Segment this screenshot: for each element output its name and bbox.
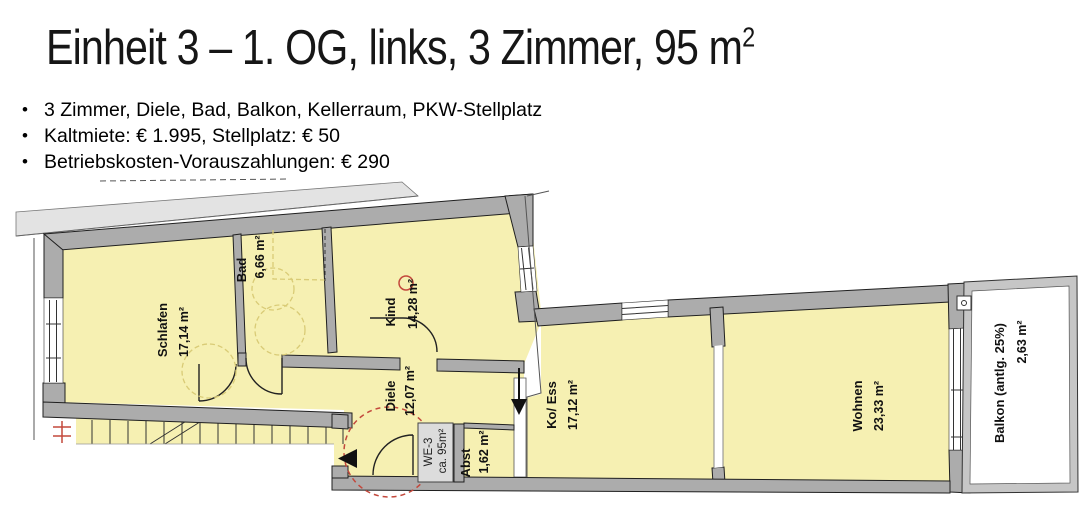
- room-label-koess: Ko/ Ess: [544, 381, 559, 429]
- room-label-wohnen: Wohnen: [850, 380, 865, 431]
- room-area-kind: 14,28 m²: [406, 279, 420, 329]
- room-label-bad: Bad: [234, 258, 249, 283]
- wall-koess-wohnen-top: [710, 307, 725, 347]
- room-label-schlafen: Schlafen: [155, 303, 170, 357]
- floorplan-drawing: WE-3 ca. 95m² Schlafen 17,14 m² Bad 6,66…: [0, 0, 1079, 520]
- unit-label-line2: ca. 95m²: [437, 428, 449, 473]
- wall-diele-left-bottom: [332, 466, 348, 478]
- room-label-diele: Diele: [383, 380, 398, 411]
- room-area-koess: 17,12 m²: [566, 380, 580, 430]
- room-area-balkon: 2,63 m²: [1015, 320, 1029, 363]
- wall-diele-north-c: [437, 359, 524, 373]
- window-schlafen: [44, 298, 63, 383]
- room-label-kind: Kind: [383, 298, 398, 327]
- slide: Einheit 3 – 1. OG, links, 3 Zimmer, 95 m…: [0, 0, 1079, 520]
- room-area-wohnen: 23,33 m²: [872, 381, 886, 431]
- room-label-balkon: Balkon (antlg. 25%): [992, 323, 1007, 443]
- section-dash-line: [100, 179, 290, 181]
- wall-diele-left-top: [332, 414, 348, 429]
- room-area-abst: 1,62 m²: [477, 430, 491, 473]
- column-marker: [957, 296, 971, 310]
- wall-diele-north-a: [238, 353, 246, 366]
- survey-cross-marker: [53, 421, 71, 443]
- unit-label-box: WE-3 ca. 95m²: [418, 423, 453, 482]
- room-fills: [58, 210, 952, 484]
- balcony: [957, 276, 1078, 493]
- wall-diele-north-b: [282, 355, 400, 370]
- room-label-abst: Abst: [458, 448, 473, 478]
- room-area-diele: 12,07 m²: [403, 366, 417, 416]
- room-area-bad: 6,66 m²: [253, 235, 267, 278]
- window-koess: [622, 300, 668, 320]
- partition-koess-wohnen: [714, 345, 723, 468]
- unit-label-line1: WE-3: [423, 438, 435, 467]
- room-area-schlafen: 17,14 m²: [177, 307, 191, 357]
